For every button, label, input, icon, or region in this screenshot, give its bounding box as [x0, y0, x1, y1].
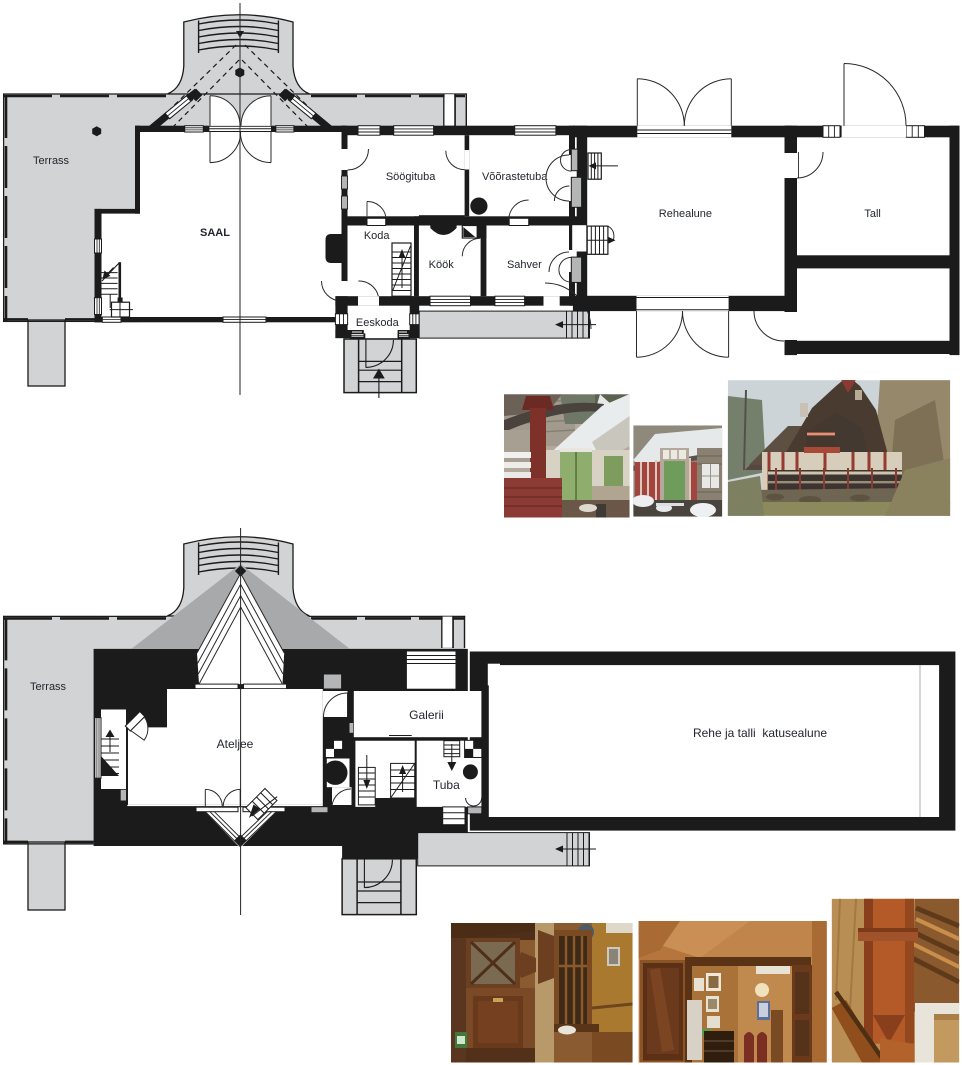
svg-text:SAAL: SAAL — [200, 227, 230, 239]
svg-text:Rehe ja talli katusealune: Rehe ja talli katusealune — [693, 726, 827, 740]
svg-text:Tall: Tall — [864, 208, 881, 220]
svg-text:Terrass: Terrass — [30, 681, 67, 693]
svg-text:Sahver: Sahver — [507, 259, 542, 271]
svg-text:Ateljee: Ateljee — [217, 737, 254, 751]
svg-text:Võõrastetuba: Võõrastetuba — [482, 171, 548, 183]
svg-text:Rehealune: Rehealune — [659, 208, 712, 220]
svg-text:Terrass: Terrass — [33, 155, 70, 167]
svg-text:Eeskoda: Eeskoda — [356, 317, 400, 329]
svg-text:Tuba: Tuba — [433, 778, 460, 792]
svg-text:Galerii: Galerii — [409, 708, 444, 722]
svg-text:Köök: Köök — [429, 259, 455, 271]
svg-text:Söögituba: Söögituba — [386, 171, 436, 183]
svg-text:Koda: Koda — [364, 230, 391, 242]
